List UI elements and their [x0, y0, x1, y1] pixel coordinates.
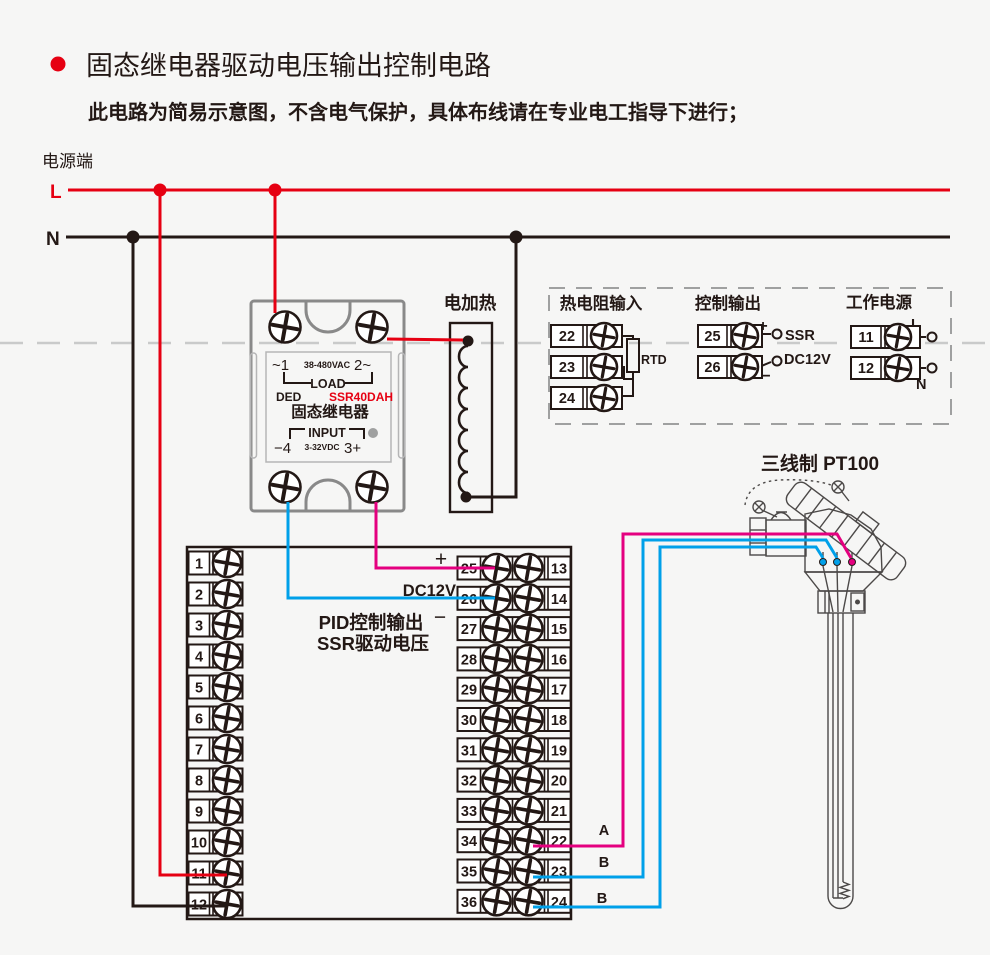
- ssr-load-label: LOAD: [310, 377, 345, 391]
- io-terminal-22: 22: [551, 323, 622, 349]
- ssr-load-voltage: 38-480VAC: [304, 360, 351, 370]
- rtd-label: RTD: [641, 353, 667, 367]
- ssr-relay: ~1 38-480VAC 2~ LOAD DED SSR40DAH 固态继电器 …: [251, 301, 405, 511]
- sensor-wire-b1: [533, 540, 837, 877]
- terminal-number: 28: [461, 652, 477, 668]
- heater-coil: [459, 346, 468, 493]
- terminal-number: 10: [191, 836, 207, 852]
- terminal-number: 35: [461, 865, 477, 881]
- ssr-to-heater-wire: [387, 339, 463, 340]
- terminal-block: + DC12V − PID控制输出 SSR驱动电压 A B B 12345678…: [187, 547, 610, 919]
- terminal-number: 22: [559, 329, 575, 345]
- terminal-number: 27: [461, 622, 477, 638]
- ssr-terminal-1: ~1: [272, 357, 289, 374]
- sensor-wire-b2: [533, 547, 823, 907]
- control-section-title: 控制输出: [695, 293, 761, 313]
- terminal-number: 4: [195, 650, 203, 666]
- terminal-number: 31: [461, 743, 477, 759]
- sensor-hinge-screw-icon: [753, 501, 777, 517]
- terminal-34-22: 3422: [458, 827, 571, 855]
- power-rails: 电源端 L N: [42, 152, 950, 250]
- terminal-number: 26: [704, 360, 720, 376]
- junction-neutral-1: [127, 231, 140, 244]
- wire-label-b2: B: [597, 891, 607, 907]
- pid-note-line1: PID控制输出: [319, 612, 424, 633]
- heater: 电加热: [444, 293, 497, 512]
- sensor-collar: [818, 591, 865, 613]
- terminal-number: 12: [858, 361, 874, 377]
- terminal-8: 8: [189, 766, 243, 794]
- io-terminal-24: 24: [551, 385, 622, 411]
- terminal-28-16: 2816: [458, 645, 571, 673]
- ssr-terminal-2: 2~: [354, 357, 371, 374]
- terminal-number: 5: [195, 681, 203, 697]
- sensor-node-b1: [834, 559, 841, 566]
- terminal-2: 2: [189, 580, 243, 608]
- sensor-head-wires: [823, 566, 852, 612]
- terminal-30-18: 3018: [458, 706, 571, 734]
- wiring-diagram-page: 固态继电器驱动电压输出控制电路 此电路为简易示意图，不含电气保护，具体布线请在专…: [0, 0, 990, 955]
- terminal-number: 16: [551, 652, 567, 668]
- ssr-top-notch: [306, 301, 350, 332]
- sensor-cap-screw-icon: [832, 481, 849, 501]
- ssr-model: SSR40DAH: [329, 390, 393, 404]
- terminal-number: 36: [461, 895, 477, 911]
- ssr-input-voltage: 3-32VDC: [305, 442, 340, 452]
- heater-body: [450, 323, 492, 512]
- terminal-number: 13: [551, 562, 567, 578]
- power-source-label: 电源端: [42, 152, 93, 171]
- wire-label-b1: B: [599, 855, 609, 871]
- sensor-node-a: [849, 559, 856, 566]
- ssr-minus-drive-wire: [288, 502, 495, 598]
- terminal-27-15: 2715: [458, 615, 571, 643]
- terminal-number: 11: [858, 330, 873, 346]
- terminal-number: 24: [559, 391, 575, 407]
- io-terminal-23: 23: [551, 354, 622, 380]
- terminal-number: 18: [551, 713, 567, 729]
- terminal-number: 3: [195, 619, 203, 635]
- terminal-number: 8: [195, 774, 203, 790]
- terminal-number: 29: [461, 683, 477, 699]
- terminal-4: 4: [189, 642, 243, 670]
- terminal-number: 7: [195, 743, 203, 759]
- sensor-stem-wires: [833, 613, 843, 898]
- control-dc12v-label: DC12V: [784, 352, 831, 368]
- neutral-label: N: [46, 229, 60, 250]
- control-plus-node: [773, 330, 782, 339]
- terminal-number: 14: [551, 592, 567, 608]
- heater-label: 电加热: [444, 293, 497, 313]
- terminal-31-19: 3119: [458, 736, 571, 764]
- sensor-cover: [783, 469, 916, 583]
- terminal-6: 6: [189, 704, 243, 732]
- terminal-number: 1: [195, 557, 203, 573]
- sensor-element-icon: [840, 882, 849, 899]
- ssr-terminal-4: −4: [274, 440, 291, 457]
- control-terminals: 2526: [698, 323, 762, 380]
- terminal-number: 20: [551, 774, 567, 790]
- pid-note-line2: SSR驱动电压: [317, 633, 430, 654]
- terminal-7: 7: [189, 735, 243, 763]
- rtd-section-title: 热电阻输入: [560, 293, 643, 313]
- terminal-number: 25: [704, 329, 720, 345]
- title-bullet-icon: [51, 57, 66, 72]
- control-minus-node: [773, 357, 782, 366]
- junction-live-2: [269, 184, 282, 197]
- sensor-node-b2: [820, 559, 827, 566]
- ssr-led-icon: [368, 428, 378, 438]
- io-panel: 热电阻输入 控制输出 工作电源 RTD 222324 + SSR − DC12V…: [549, 288, 951, 424]
- block-minus: −: [434, 606, 446, 629]
- terminal-29-17: 2917: [458, 675, 571, 703]
- supply-live-node: [928, 333, 937, 342]
- control-ssr-label: SSR: [785, 328, 815, 344]
- terminal-5: 5: [189, 673, 243, 701]
- terminal-36-24: 3624: [458, 887, 571, 915]
- sensor-label: 三线制 PT100: [761, 452, 879, 475]
- terminal-number: 9: [195, 805, 203, 821]
- terminal-32-20: 3220: [458, 766, 571, 794]
- wiring-diagram: 固态继电器驱动电压输出控制电路 此电路为简易示意图，不含电气保护，具体布线请在专…: [0, 0, 990, 955]
- io-terminal-12: 12: [851, 355, 920, 381]
- page-title: 固态继电器驱动电压输出控制电路: [86, 51, 491, 81]
- wire-label-a: A: [599, 823, 610, 839]
- io-terminal-11: 11: [851, 324, 920, 350]
- terminal-10: 10: [189, 828, 243, 856]
- io-terminal-25: 25: [698, 323, 762, 349]
- terminal-3: 3: [189, 611, 243, 639]
- live-label: L: [50, 182, 62, 203]
- sensor-neck: [766, 520, 806, 556]
- terminal-number: 2: [195, 588, 203, 604]
- terminal-number: 19: [551, 743, 567, 759]
- sensor-pt100: 三线制 PT100: [745, 452, 916, 909]
- terminal-number: 15: [551, 622, 567, 638]
- terminal-number: 21: [551, 804, 567, 820]
- ssr-bottom-notch: [306, 480, 350, 511]
- terminal-11: 11: [189, 859, 243, 887]
- sensor-neck-dome: [771, 512, 791, 520]
- terminal-number: 17: [551, 683, 567, 699]
- terminal-number: 33: [461, 804, 477, 820]
- ssr-input-label: INPUT: [308, 426, 346, 440]
- sensor-wire-a: [533, 534, 851, 846]
- ssr-brand: DED: [276, 390, 302, 404]
- terminal-number: 22: [551, 834, 567, 850]
- ssr-name: 固态继电器: [291, 402, 369, 421]
- io-terminal-26: 26: [698, 354, 762, 380]
- rtd-terminals: 222324: [551, 323, 622, 411]
- terminal-number: 6: [195, 712, 203, 728]
- terminal-number: 26: [461, 592, 477, 608]
- supply-section-title: 工作电源: [846, 292, 913, 312]
- sensor-stem: [828, 613, 853, 909]
- terminal-35-23: 3523: [458, 857, 571, 885]
- terminal-block-left-column: 123456789101112: [189, 549, 243, 918]
- terminal-number: 34: [461, 834, 477, 850]
- terminal-9: 9: [189, 797, 243, 825]
- heater-top-node: [463, 336, 474, 347]
- terminal-number: 30: [461, 713, 477, 729]
- terminal-1: 1: [189, 549, 243, 577]
- header: 固态继电器驱动电压输出控制电路 此电路为简易示意图，不含电气保护，具体布线请在专…: [51, 51, 749, 124]
- sensor-taper: [805, 572, 882, 591]
- terminal-12: 12: [189, 890, 243, 918]
- junction-live-1: [154, 184, 167, 197]
- supply-neutral-node: [928, 364, 937, 373]
- page-subtitle: 此电路为简易示意图，不含电气保护，具体布线请在专业电工指导下进行；: [88, 100, 748, 124]
- supply-terminals: 1112: [851, 324, 920, 381]
- terminal-block-right-columns: 2513261427152816291730183119322033213422…: [458, 554, 571, 915]
- sensor-hex-fitting: [750, 518, 766, 555]
- junction-neutral-2: [510, 231, 523, 244]
- ssr-terminal-3: 3+: [344, 440, 361, 457]
- terminal-number: 32: [461, 774, 477, 790]
- terminal-number: 23: [559, 360, 575, 376]
- terminal-33-21: 3321: [458, 796, 571, 824]
